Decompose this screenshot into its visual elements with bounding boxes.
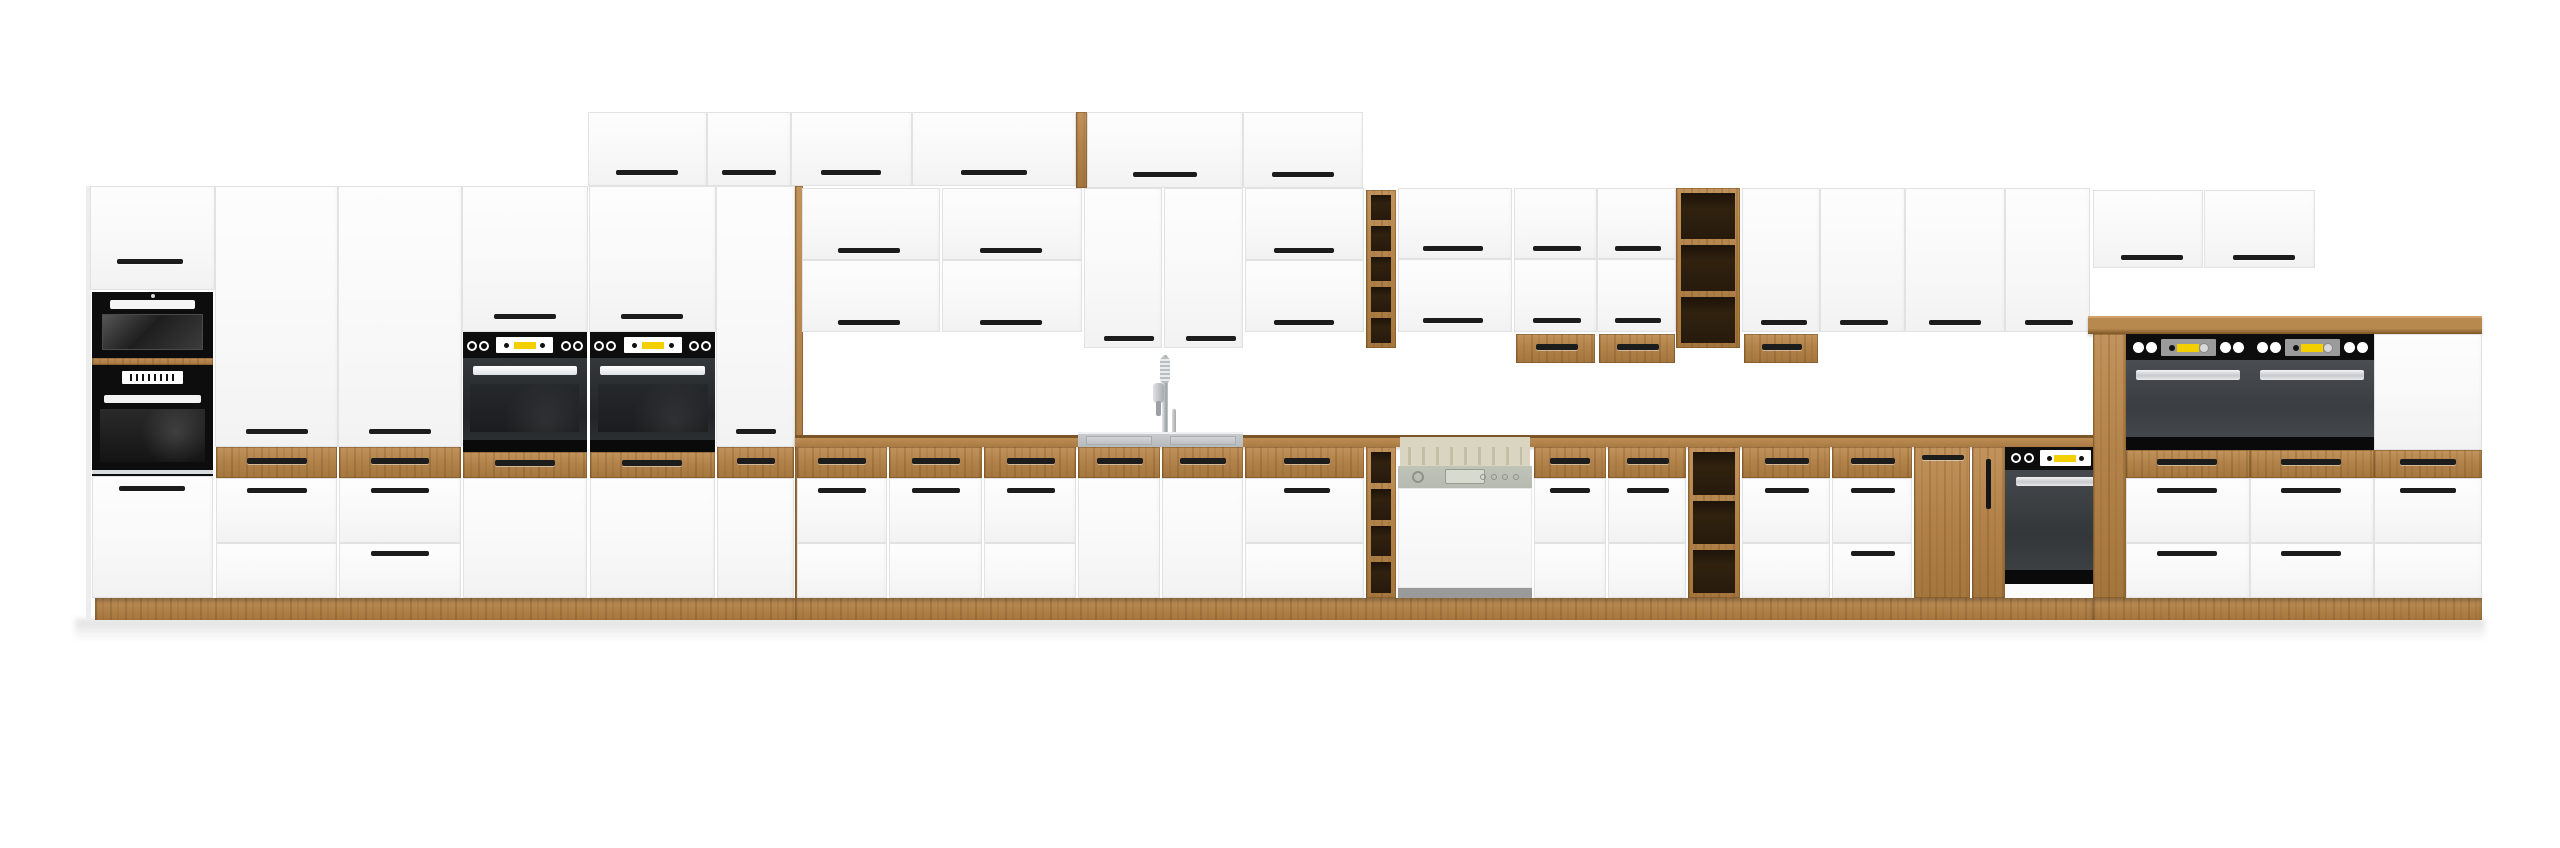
base-1-door — [797, 543, 887, 598]
microwave-vent-bar — [110, 300, 195, 309]
wall-cab-2-lower-handle — [980, 320, 1042, 325]
tall-1-built-in-oven — [92, 365, 213, 476]
oven-glass — [100, 409, 205, 462]
wall-open-shelf-narrow — [1366, 190, 1396, 348]
tall-4-bottom-door — [717, 478, 794, 598]
display-timer — [2054, 455, 2076, 462]
wall-cab-8-handle — [1840, 320, 1888, 325]
overhead-door-3-handle — [821, 170, 881, 175]
base-open-shelf-2-cell-3 — [1693, 550, 1735, 593]
sink-base-drawer-1-handle — [1097, 458, 1143, 464]
wall-open-shelf-narrow-cell-3 — [1371, 257, 1391, 282]
oven-knob-4 — [701, 341, 711, 351]
oven-knob-2 — [479, 341, 489, 351]
wall-cab-2-upper-handle — [980, 248, 1042, 253]
right-built-in-oven-1 — [2126, 334, 2250, 450]
oven-dot-1 — [2133, 342, 2144, 353]
microwave-glass — [102, 314, 203, 350]
base-open-shelf-1-cell-4 — [1371, 562, 1391, 593]
right-end-wood-handle — [2400, 459, 2456, 465]
dishwasher — [1398, 435, 1532, 598]
base-2-wood-handle — [912, 458, 960, 464]
oven-tower-1-flap-handle — [494, 314, 556, 319]
sink-wall-cab-door-1-handle — [1104, 336, 1154, 341]
tall-2-door — [215, 186, 338, 447]
wall-cab-10 — [2005, 188, 2090, 332]
wall-cab-9 — [1905, 188, 2005, 332]
wall-open-shelf-wide-cell-1 — [1681, 193, 1735, 239]
right-tower-1-white-handle-1 — [2157, 488, 2217, 493]
wall-open-shelf-wide-cell-2 — [1681, 245, 1735, 291]
display-dot-right — [2079, 456, 2084, 461]
dishwasher-button-2 — [1491, 474, 1497, 480]
tall-2-white-drawer-handle — [247, 488, 307, 493]
right-tower-2-white-handle-1 — [2281, 488, 2341, 493]
wall-cab-5-upper-handle — [1533, 246, 1581, 251]
tall-3-door — [338, 186, 462, 447]
base-2-door — [889, 543, 982, 598]
tall-1-bottom-door — [92, 476, 213, 598]
base-open-shelf-2 — [1688, 447, 1740, 598]
dishwasher-fascia — [1398, 466, 1532, 488]
tall-3-wood-drawer-handle — [371, 458, 429, 464]
display-timer — [2177, 344, 2199, 352]
overhead-door-5-handle — [1133, 172, 1197, 177]
dishwasher-tub — [1400, 437, 1530, 467]
oven-door — [2250, 360, 2374, 437]
oven-dot-2 — [2270, 342, 2281, 353]
oven-door-bar — [2136, 370, 2240, 380]
tall-4-wood-drawer-handle — [737, 458, 775, 464]
oven-door-glass — [598, 384, 708, 432]
oven-bottom-strip — [2250, 437, 2374, 450]
oven-tower-2-wood-handle — [622, 460, 682, 466]
oven-dot-4 — [2357, 342, 2368, 353]
oven-control-display — [2161, 339, 2216, 356]
sink-base-door-1 — [1078, 478, 1160, 598]
wall-cab-3-lower-handle — [1274, 320, 1334, 325]
base-8-white-handle-1 — [1851, 488, 1895, 493]
oven-tower-1-bottom-door — [463, 478, 587, 598]
base-open-shelf-1 — [1366, 447, 1396, 598]
wall-open-shelf-narrow-cell-1 — [1371, 195, 1391, 220]
sink-bowl-left — [1086, 436, 1152, 445]
tall-3-door-handle — [369, 429, 431, 434]
oven-dot-3 — [2344, 342, 2355, 353]
base-3-white-handle — [1007, 488, 1055, 493]
wall-cab-7-handle — [1761, 320, 1807, 325]
display-knob — [2199, 343, 2209, 353]
oven-tower-1-wood-handle — [495, 460, 555, 466]
oven-handle-bar — [104, 395, 201, 403]
plinth-left-block — [95, 598, 798, 620]
oven-trim — [92, 470, 213, 474]
display-knob — [2323, 343, 2333, 353]
wall-cab-3-upper-handle — [1274, 248, 1334, 253]
oven-door — [590, 358, 715, 440]
oven-dot-2 — [2146, 342, 2157, 353]
oven-bottom-strip — [463, 440, 587, 452]
kitchen-faucet — [1146, 355, 1180, 439]
oven-display — [2040, 450, 2091, 466]
wall-cab-9-handle — [1929, 320, 1981, 325]
oven-door — [2126, 360, 2250, 437]
base-open-shelf-2-cell-1 — [1693, 452, 1735, 495]
oven-control-display — [496, 337, 553, 353]
oven-knob-2 — [606, 341, 616, 351]
countertop-right-block — [2088, 316, 2482, 334]
built-in-oven-2 — [590, 332, 715, 452]
sink-bowl-right — [1170, 436, 1236, 445]
oven-knob-1 — [594, 341, 604, 351]
oven-dot-3 — [2220, 342, 2231, 353]
oven-ring-1 — [2011, 453, 2021, 463]
dishwasher-button-1 — [1480, 474, 1486, 480]
oven-door-bar — [2260, 370, 2364, 380]
wall-cab-8 — [1820, 188, 1905, 332]
wall-cab-4-upper-handle — [1423, 246, 1483, 251]
wall-open-shelf-wide — [1676, 188, 1740, 348]
base-6-wood-handle — [1627, 458, 1669, 464]
tall-1-bottom-door-handle — [119, 486, 185, 491]
inset-sink — [1078, 432, 1243, 447]
display-dot-left — [632, 343, 637, 348]
sink-base-door-2 — [1162, 478, 1243, 598]
tall-1-top-door-handle — [117, 259, 183, 264]
tall-3-white-drawer-1-handle — [371, 488, 429, 493]
dishwasher-button-4 — [1513, 474, 1519, 480]
dishwasher-grip — [1445, 469, 1485, 484]
base-8-white-handle-2 — [1851, 551, 1895, 556]
oven-control-display — [624, 337, 682, 353]
overhead-wood-side — [1076, 112, 1087, 188]
base-6-door — [1608, 543, 1686, 598]
floor-shadow — [75, 619, 2485, 641]
oven-knob-3 — [561, 341, 571, 351]
tall-2-door-handle — [246, 429, 308, 434]
plinth-right-block — [2093, 598, 2482, 620]
wall-open-shelf-narrow-cell-5 — [1371, 318, 1391, 343]
sink-wall-cab-door-1 — [1084, 188, 1162, 348]
base-4-wood-handle — [1284, 458, 1330, 464]
display-dot — [2169, 345, 2175, 351]
overhead-door-1-handle — [616, 170, 678, 175]
built-in-microwave — [92, 292, 213, 358]
display-dot-right — [540, 343, 545, 348]
base-1-wood-handle — [818, 458, 866, 464]
right-tower-1-white-handle-2 — [2157, 551, 2217, 556]
base-3-door — [984, 543, 1076, 598]
oven-tower-1-flap — [462, 186, 588, 332]
oven-knob-3 — [689, 341, 699, 351]
wood-door-narrow-handle — [1986, 459, 1991, 509]
wall-wood-box-2-handle — [1617, 344, 1659, 350]
wall-cab-6-upper-handle — [1615, 246, 1661, 251]
display-timer — [642, 342, 664, 349]
base-2-white-handle — [912, 488, 960, 493]
right-tower-2-wood-handle — [2281, 459, 2341, 465]
display-dot — [2293, 345, 2299, 351]
tall-4-door-handle — [736, 429, 776, 434]
wall-cab-10-handle — [2025, 320, 2073, 325]
overhead-door-6-handle — [1272, 172, 1334, 177]
wall-wood-box-3-handle — [1762, 344, 1802, 350]
oven-dot-4 — [2233, 342, 2244, 353]
wall-cab-4-lower-handle — [1423, 318, 1483, 323]
sink-wall-cab-door-2-handle — [1186, 336, 1236, 341]
base-4-door — [1245, 543, 1364, 598]
oven-display — [122, 371, 183, 384]
oven-door — [463, 358, 587, 440]
dishwasher-door — [1398, 488, 1532, 588]
wall-cab-5-lower-handle — [1533, 318, 1581, 323]
tall-1-top-door — [90, 186, 215, 290]
base-1-white-handle — [818, 488, 866, 493]
dishwasher-knob — [1412, 471, 1424, 483]
base-4-white-handle — [1284, 488, 1330, 493]
plinth-main-run — [795, 598, 2093, 620]
oven-bottom-strip — [590, 440, 715, 452]
dishwasher-base-gap — [1398, 588, 1532, 598]
oven-door-bar — [600, 366, 705, 375]
tall-2-wood-drawer-handle — [247, 458, 307, 464]
tall-2-bottom-door — [216, 543, 337, 598]
base-6-white-handle — [1627, 488, 1669, 493]
base-5-white-handle — [1550, 488, 1590, 493]
cargo-wood-handle — [1922, 455, 1964, 460]
wall-open-shelf-wide-cell-3 — [1681, 297, 1735, 343]
tall-1-wood-shelf — [92, 358, 213, 365]
base-7-white-handle — [1765, 488, 1809, 493]
overhead-door-4-handle — [961, 170, 1027, 175]
oven-tower-2-flap — [589, 186, 716, 332]
right-block-wood-side — [2093, 334, 2126, 598]
oven-tower-2-flap-handle — [621, 314, 683, 319]
right-end-white-handle — [2400, 488, 2456, 493]
oven-dot-1 — [2257, 342, 2268, 353]
base-open-shelf-1-cell-2 — [1371, 489, 1391, 520]
base-open-shelf-1-cell-1 — [1371, 452, 1391, 483]
sink-base-drawer-2-handle — [1180, 458, 1226, 464]
display-dot-left — [2047, 456, 2052, 461]
right-built-in-oven-2 — [2250, 334, 2374, 450]
dishwasher-button-3 — [1502, 474, 1508, 480]
faucet-spray-head — [1153, 383, 1164, 403]
microwave-led — [151, 294, 155, 298]
right-tower-2-white-handle-2 — [2281, 551, 2341, 556]
oven-knob-4 — [573, 341, 583, 351]
wall-open-shelf-narrow-cell-4 — [1371, 287, 1391, 312]
wall-open-shelf-narrow-cell-2 — [1371, 226, 1391, 251]
wall-cab-1-upper-handle — [838, 248, 900, 253]
wall-wood-box-1-handle — [1536, 344, 1578, 350]
oven-door-glass — [470, 384, 579, 432]
base-5-door — [1534, 543, 1606, 598]
faucet-spray-tip — [1156, 401, 1161, 416]
right-flap-cab-2-handle — [2233, 255, 2295, 260]
sink-wall-cab-door-2 — [1164, 188, 1243, 348]
base-7-door — [1742, 543, 1830, 598]
tall-3-white-drawer-2-handle — [371, 551, 429, 556]
oven-door-bar — [473, 366, 577, 375]
right-flap-cab-1-handle — [2121, 255, 2183, 260]
oven-tower-2-bottom-door — [590, 478, 715, 598]
oven-ring-2 — [2024, 453, 2034, 463]
base-7-wood-handle — [1765, 458, 1809, 464]
oven-display-digits — [130, 374, 175, 381]
display-timer — [514, 342, 536, 349]
base-open-shelf-1-cell-3 — [1371, 526, 1391, 557]
display-timer — [2301, 344, 2323, 352]
dishwasher-rack — [1408, 447, 1522, 465]
tall-4-door — [716, 186, 795, 447]
oven-knob-1 — [467, 341, 477, 351]
base-5-wood-handle — [1550, 458, 1590, 464]
display-dot-right — [669, 343, 674, 348]
right-end-cab-door — [2374, 334, 2482, 450]
base-open-shelf-2-cell-2 — [1693, 501, 1735, 544]
right-end-bottom-door — [2374, 543, 2482, 598]
right-tower-1-wood-handle — [2157, 459, 2217, 465]
oven-control-display — [2285, 339, 2340, 356]
wall-cab-6-lower-handle — [1615, 318, 1661, 323]
oven-bottom-strip — [2126, 437, 2250, 450]
cargo-wood-front — [1914, 447, 1970, 598]
wall-cab-1-lower-handle — [838, 320, 900, 325]
built-in-oven-1 — [463, 332, 587, 452]
kitchen-set-product-render — [0, 0, 2560, 848]
base-8-wood-handle — [1851, 458, 1895, 464]
overhead-door-2-handle — [722, 170, 776, 175]
display-dot-left — [504, 343, 509, 348]
wall-cab-7 — [1742, 188, 1820, 332]
faucet-spring — [1160, 357, 1170, 383]
base-3-wood-handle — [1007, 458, 1055, 464]
